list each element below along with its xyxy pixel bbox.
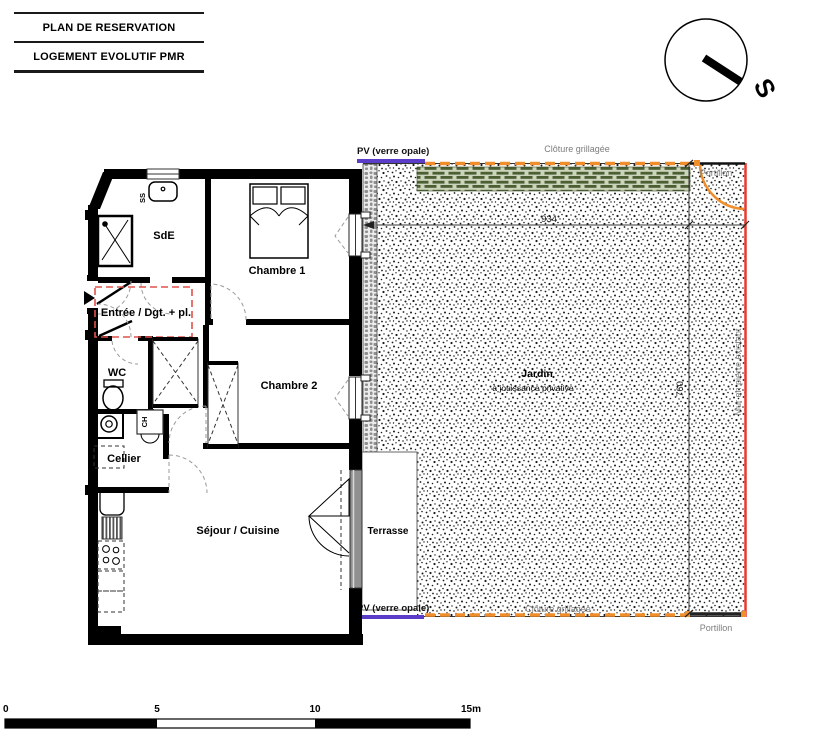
apartment: CH SdE Chambre 1 Entrée / Dgt. + pl. WC … <box>84 169 370 645</box>
scale-bar: 0 5 10 15m <box>3 704 481 728</box>
floor-plan-svg: 934 760 PV (verre opale) Clôture grillag… <box>0 0 834 750</box>
chambre1-label: Chambre 1 <box>249 265 306 277</box>
dimension-height-value: 760 <box>675 381 686 397</box>
dimension-width-value: 934 <box>541 214 557 225</box>
cloture-bottom-label: Clôture grillagée <box>525 604 591 614</box>
cloture-top-label: Clôture grillagée <box>544 144 610 154</box>
portillon-top-label: Portillon <box>700 168 733 178</box>
sde-window <box>147 169 179 179</box>
gate-top-hinge <box>694 160 700 166</box>
pv-screen-top <box>357 159 425 163</box>
pv-bottom-label: PV (verre opale) <box>357 603 429 614</box>
garden-gravel-texture-lower <box>417 452 746 617</box>
sejour-label: Séjour / Cuisine <box>196 525 279 537</box>
terrasse-label: Terrasse <box>368 526 409 537</box>
stone-wall-label: Mur en pierre existant <box>733 328 743 416</box>
cellier-label: Cellier <box>107 453 141 465</box>
scale-tick-0: 0 <box>3 704 9 715</box>
sde-label: SdE <box>153 230 174 242</box>
hall-closet <box>153 337 198 408</box>
jardin-sublabel: à jouissance privative <box>492 383 574 393</box>
jardin-label: Jardin <box>521 368 553 380</box>
compass-south-label: S <box>748 73 783 102</box>
hedge-strip <box>417 167 690 191</box>
wardrobe-chambre2 <box>208 361 238 448</box>
stone-wall-band <box>363 164 377 452</box>
entree-label: Entrée / Dgt. + pl. <box>101 307 191 319</box>
chambre2-label: Chambre 2 <box>261 380 318 392</box>
water-heater-label: CH <box>140 417 149 428</box>
gate-bottom-hinge-right <box>741 611 746 617</box>
scale-tick-15m: 15m <box>461 704 481 715</box>
portillon-bottom-label: Portillon <box>700 623 733 633</box>
towel-dryer-label: SS <box>138 193 147 203</box>
garden-gravel-texture <box>377 163 746 452</box>
wc-label: WC <box>108 367 126 379</box>
compass: S <box>665 19 782 103</box>
garden: 934 760 PV (verre opale) Clôture grillag… <box>357 144 749 633</box>
pv-screen-bottom <box>357 615 424 619</box>
scale-tick-10: 10 <box>309 704 321 715</box>
scale-tick-5: 5 <box>154 704 160 715</box>
pv-top-label: PV (verre opale) <box>357 146 429 157</box>
